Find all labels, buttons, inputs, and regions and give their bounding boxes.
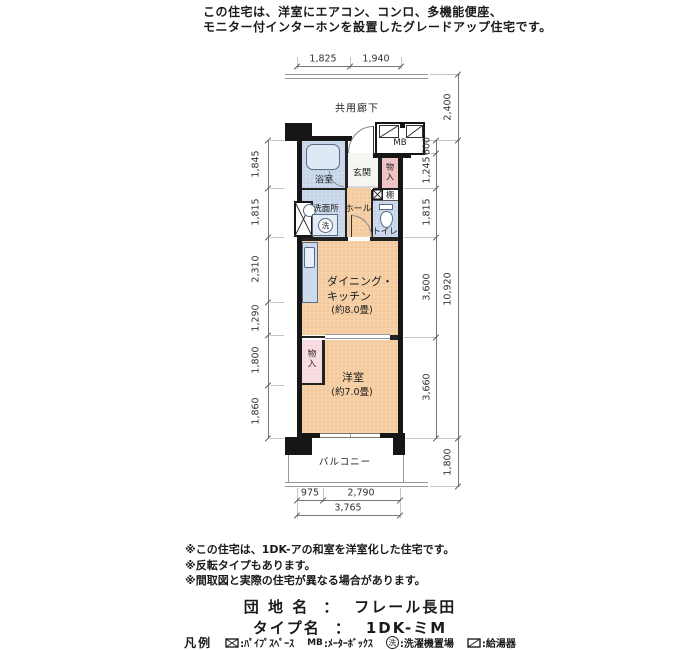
dim-right-outer-3: 1,800: [443, 448, 454, 475]
ext-line: [270, 438, 284, 439]
corridor-line: [285, 78, 428, 79]
dim-bottom-total: 3,765: [334, 503, 361, 514]
partition: [302, 237, 348, 241]
meter-box-icon: MB: [307, 638, 323, 648]
notes: ※この住宅は、1DK-アの和室を洋室化した住宅です。 ※反転タイプもあります。 …: [185, 542, 455, 589]
washing-machine-symbol: 洗: [318, 218, 333, 233]
bath-label: 浴室: [315, 173, 333, 186]
balcony-side: [288, 455, 289, 482]
kitchen-sink: [304, 247, 315, 268]
toilet-tank: [379, 204, 393, 210]
hall-label: ホール: [344, 202, 371, 215]
dim-left-4: 1,290: [251, 304, 262, 331]
header-note: この住宅は、洋室にエアコン、コンロ、多機能便座、 モニター付インターホンを設置し…: [203, 5, 552, 34]
wall-corner-bottom-left: [285, 437, 312, 455]
legend-item-pipe-space: :ﾊﾟｲﾌﾟｽﾍﾟｰｽ: [225, 635, 294, 650]
dim-top-2: 1,940: [362, 54, 389, 65]
dim-tick: [455, 483, 461, 489]
ext-line: [270, 140, 284, 141]
western-label: 洋室: [342, 369, 364, 385]
mb-square-mark: [400, 123, 405, 128]
dim-bottom-2: 2,790: [347, 488, 374, 499]
closet-entrance-label: 物入: [386, 163, 394, 182]
dim-right-inner-2: 1,245: [422, 156, 433, 183]
partition: [302, 188, 345, 190]
dim-left-2: 1,815: [251, 198, 262, 225]
legend-item-meter-box: MB :ﾒｰﾀｰﾎﾞｯｸｽ: [307, 635, 373, 650]
entrance-door-leaf: [373, 126, 374, 154]
ext-line: [404, 237, 436, 238]
partition: [302, 383, 325, 385]
hall-door-leaf: [351, 215, 352, 237]
dim-left-6: 1,860: [251, 397, 262, 424]
wall: [302, 136, 352, 141]
dim-line-bottom-1: [297, 500, 400, 501]
corridor-line: [285, 74, 428, 75]
window-pane-mark: [350, 434, 351, 437]
floorplan-page: この住宅は、洋室にエアコン、コンロ、多機能便座、 モニター付インターホンを設置し…: [0, 0, 700, 650]
wall-right: [398, 158, 403, 438]
pipe-space-icon: [372, 189, 383, 200]
dim-right-inner-1: 600: [422, 137, 433, 155]
dim-right-inner-3: 1,815: [422, 198, 433, 225]
legend-item-water-heater: :給湯器: [467, 635, 516, 650]
dim-line-bottom-2: [297, 515, 400, 516]
partition: [370, 237, 398, 241]
partition: [378, 158, 382, 188]
estate-value: フレール長田: [354, 596, 456, 617]
water-heater-icon: [467, 638, 481, 648]
legend-washer-label: :洗濯機置場: [400, 635, 454, 650]
dim-right-outer-1: 2,400: [443, 93, 454, 120]
note-line3: ※間取図と実際の住宅が異なる場合があります。: [185, 573, 455, 589]
dim-bottom-1: 975: [301, 488, 319, 499]
entrance-door-swing: [348, 126, 373, 153]
partition: [302, 336, 325, 338]
closet-western-label: 物入: [308, 351, 317, 370]
estate-name-row: 団 地 名 ： フレール長田: [0, 596, 700, 617]
ext-line: [270, 335, 284, 336]
dim-right-outer-2: 10,920: [443, 272, 454, 305]
dim-left-5: 1,800: [251, 346, 262, 373]
ext-line: [270, 385, 284, 386]
water-heater-icon: [379, 125, 399, 138]
dim-top-1: 1,825: [309, 54, 336, 65]
legend: 凡例 :ﾊﾟｲﾌﾟｽﾍﾟｰｽ MB :ﾒｰﾀｰﾎﾞｯｸｽ 洗 :洗濯機置場 :給…: [0, 634, 700, 650]
ext-line: [404, 337, 436, 338]
dk-size-label: (約8.0畳): [331, 302, 373, 316]
balcony-side: [403, 455, 404, 482]
bathtub: [306, 144, 340, 170]
sliding-door-line: [325, 338, 390, 339]
note-line2: ※反転タイプもあります。: [185, 558, 455, 574]
shelf-label: 棚: [386, 190, 394, 201]
estate-label: 団 地 名: [244, 596, 309, 617]
washer-place-icon: 洗: [386, 636, 399, 649]
note-line1: ※この住宅は、1DK-アの和室を洋室化した住宅です。: [185, 542, 455, 558]
dk-label-line1: ダイニング・: [327, 273, 393, 289]
legend-pipe-label: :ﾊﾟｲﾌﾟｽﾍﾟｰｽ: [240, 635, 294, 650]
toilet-label: トイレ: [372, 225, 398, 237]
legend-item-washer-place: 洗 :洗濯機置場: [386, 635, 454, 650]
dim-line-right-inner: [436, 140, 437, 438]
sliding-door-line: [325, 334, 390, 335]
header-line1: この住宅は、洋室にエアコン、コンロ、多機能便座、: [203, 5, 552, 20]
ext-line: [404, 188, 436, 189]
dim-right-inner-5: 3,660: [422, 373, 433, 400]
partition: [322, 340, 325, 385]
balcony-label: バルコニー: [319, 454, 371, 468]
legend-heater-label: :給湯器: [482, 635, 516, 650]
entrance-step-line: [348, 186, 378, 188]
ext-line: [270, 302, 284, 303]
partition: [390, 335, 398, 340]
mb-label: MB: [375, 138, 425, 148]
pipe-space-icon: [225, 638, 239, 648]
estate-separator: ：: [323, 596, 340, 617]
dim-right-inner-4: 3,600: [422, 273, 433, 300]
washroom-label: 洗面所: [313, 202, 339, 214]
dim-line-left: [268, 140, 269, 438]
western-size-label: (約7.0畳): [331, 384, 373, 398]
water-heater-icon: [406, 125, 423, 138]
dim-line-right-outer: [458, 74, 459, 486]
balcony-edge-line: [285, 482, 428, 483]
ext-line: [270, 237, 284, 238]
legend-mb-label: :ﾒｰﾀｰﾎﾞｯｸｽ: [324, 635, 373, 650]
legend-title: 凡例: [184, 634, 212, 650]
ext-line: [270, 188, 284, 189]
dim-left-1: 1,845: [251, 150, 262, 177]
wall-corner-bottom-right: [393, 433, 405, 455]
corridor-label: 共用廊下: [335, 100, 379, 115]
header-line2: モニター付インターホンを設置したグレードアップ住宅です。: [203, 20, 552, 35]
dim-left-3: 2,310: [251, 255, 262, 282]
entrance-label: 玄関: [353, 166, 371, 179]
